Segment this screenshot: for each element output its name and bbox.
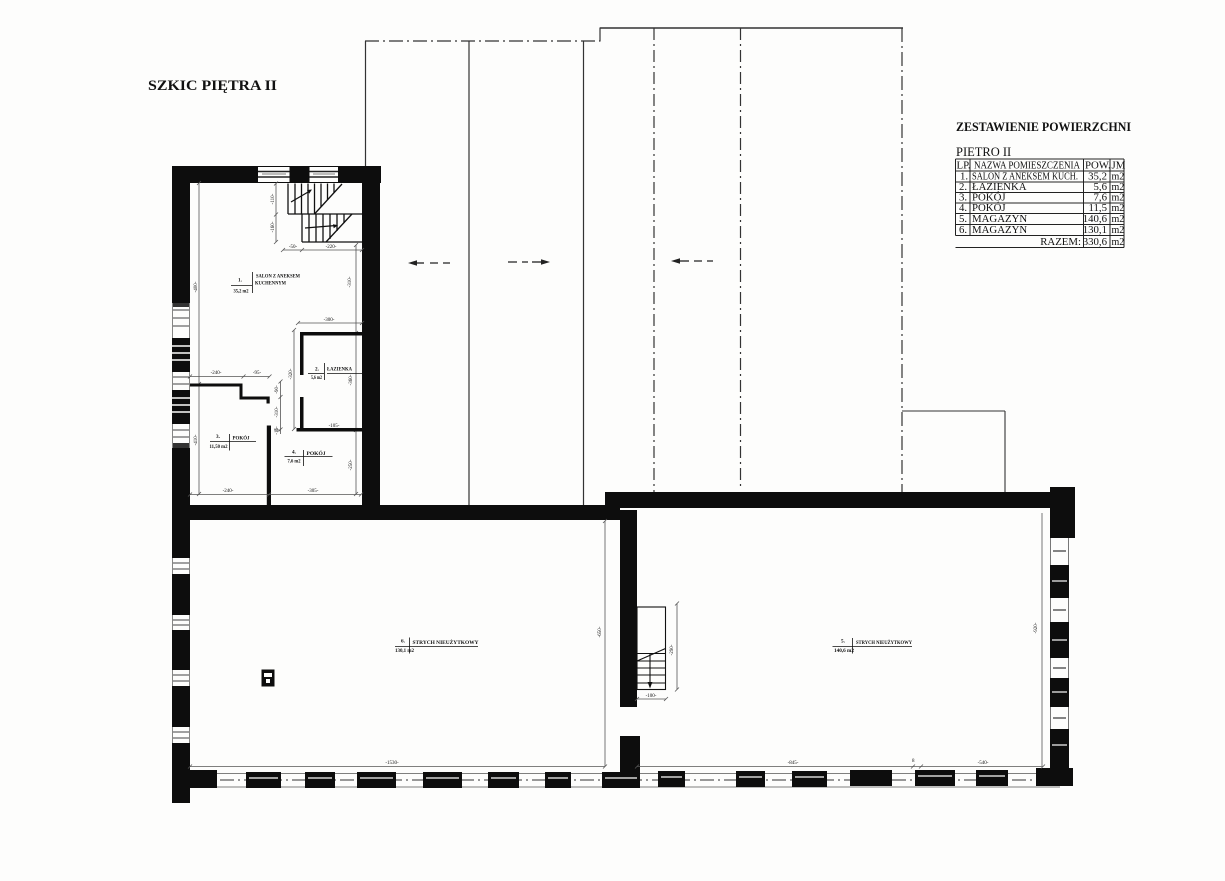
svg-text:-305-: -305- (308, 489, 319, 494)
svg-text:-300-: -300- (324, 318, 335, 323)
svg-text:-310-: -310- (275, 406, 280, 417)
svg-text:-845-: -845- (788, 761, 799, 766)
svg-text:-540-: -540- (978, 761, 989, 766)
svg-text:-90-: -90- (275, 385, 280, 394)
svg-text:STRYCH NIEUŻYTKOWY: STRYCH NIEUŻYTKOWY (856, 639, 912, 646)
svg-text:JM: JM (1112, 160, 1126, 172)
svg-text:-220-: -220- (326, 245, 337, 250)
svg-text:-410-: -410- (194, 434, 199, 445)
svg-text:STRYCH NIEUŻYTKOWY: STRYCH NIEUŻYTKOWY (413, 639, 479, 646)
svg-text:-240-: -240- (211, 371, 222, 376)
svg-text:POKÓJ: POKÓJ (307, 449, 326, 457)
svg-text:140,6 m2: 140,6 m2 (834, 648, 854, 654)
svg-text:RAZEM:: RAZEM: (1040, 236, 1081, 248)
svg-text:11,50 m2: 11,50 m2 (210, 444, 228, 450)
svg-text:SALON Z ANEKSEM: SALON Z ANEKSEM (256, 274, 300, 280)
svg-text:-100-: -100- (646, 694, 657, 699)
svg-text:-240-: -240- (223, 489, 234, 494)
svg-text:-105-: -105- (329, 424, 340, 429)
svg-text:-400-: -400- (194, 281, 199, 292)
svg-text:m2: m2 (1112, 237, 1125, 248)
svg-text:m2: m2 (1112, 225, 1125, 236)
svg-text:-1530-: -1530- (385, 761, 399, 766)
svg-text:130,1: 130,1 (1083, 224, 1107, 236)
svg-text:330,6: 330,6 (1083, 236, 1108, 248)
svg-text:2.: 2. (315, 367, 320, 373)
svg-text:-160-: -160- (271, 221, 276, 232)
svg-text:-110-: -110- (271, 193, 276, 204)
svg-text:5.: 5. (841, 639, 846, 645)
svg-text:-310-: -310- (348, 276, 353, 287)
svg-text:m2: m2 (1112, 193, 1125, 204)
svg-text:-16-: -16- (275, 426, 280, 435)
svg-text:-360-: -360- (349, 374, 354, 385)
svg-text:KUCHENNYM: KUCHENNYM (255, 281, 286, 287)
svg-text:SZKIC PIĘTRA II: SZKIC PIĘTRA II (148, 78, 277, 94)
svg-text:1.: 1. (238, 278, 243, 284)
svg-text:ŁAZIENKA: ŁAZIENKA (327, 367, 352, 373)
svg-text:6.: 6. (401, 639, 406, 645)
svg-text:6.: 6. (959, 224, 967, 236)
svg-text:7,6 m2: 7,6 m2 (288, 459, 301, 465)
svg-text:-920-: -920- (1034, 622, 1039, 633)
svg-text:m2: m2 (1112, 182, 1125, 193)
svg-text:4.: 4. (292, 450, 297, 456)
svg-text:35,2 m2: 35,2 m2 (234, 289, 249, 295)
svg-text:ZESTAWIENIE POWIERZCHNI: ZESTAWIENIE POWIERZCHNI (956, 119, 1131, 134)
svg-text:PIETRO II: PIETRO II (956, 145, 1011, 159)
svg-text:130,1 m2: 130,1 m2 (395, 648, 414, 654)
svg-text:3.: 3. (216, 434, 221, 440)
svg-text:-650-: -650- (598, 626, 603, 637)
svg-text:m2: m2 (1112, 172, 1125, 183)
svg-text:m2: m2 (1112, 203, 1125, 214)
svg-text:-95-: -95- (253, 371, 262, 376)
svg-text:8: 8 (912, 759, 915, 764)
svg-text:-290-: -290- (670, 644, 675, 655)
svg-text:m2: m2 (1112, 214, 1125, 225)
svg-text:MAGAZYN: MAGAZYN (972, 224, 1027, 236)
svg-text:-320-: -320- (289, 368, 294, 379)
svg-text:POKÓJ: POKÓJ (233, 434, 250, 442)
svg-text:-250-: -250- (349, 459, 354, 470)
svg-text:5,6 m2: 5,6 m2 (311, 375, 322, 381)
svg-text:-50-: -50- (289, 245, 298, 250)
